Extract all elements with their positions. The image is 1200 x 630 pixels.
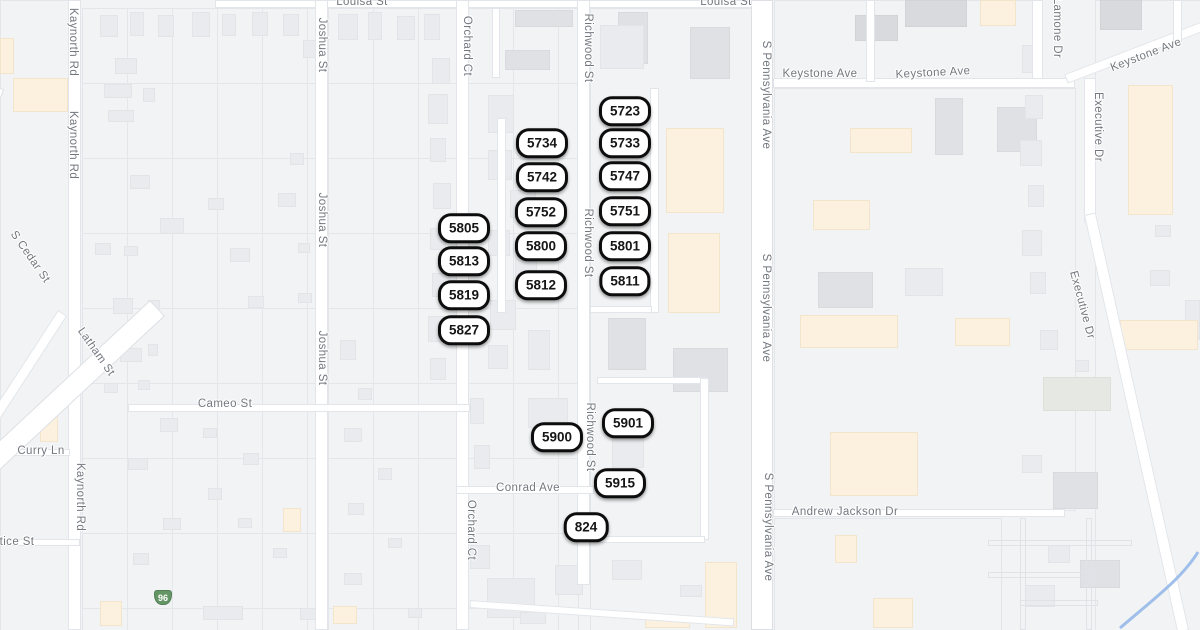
building (690, 27, 730, 79)
building (148, 344, 158, 356)
building (378, 468, 392, 480)
building (368, 12, 382, 40)
building (340, 340, 356, 360)
address-marker[interactable]: 5733 (599, 128, 651, 158)
building (855, 15, 898, 41)
alley (650, 88, 659, 313)
address-marker[interactable]: 5801 (599, 231, 651, 261)
building (680, 585, 702, 597)
building (612, 560, 642, 580)
building (1150, 270, 1170, 286)
building (1022, 230, 1042, 256)
alley (866, 0, 875, 82)
building (238, 518, 252, 528)
building (1020, 140, 1042, 166)
building (470, 398, 484, 424)
building (203, 606, 243, 620)
building (222, 14, 236, 36)
street-label: Louisa St (700, 0, 752, 8)
building (203, 428, 217, 438)
building (208, 488, 222, 500)
building (1048, 545, 1070, 563)
street-label: Kaynorth Rd (67, 8, 79, 76)
building (143, 88, 155, 102)
building (1025, 95, 1043, 119)
building (160, 418, 178, 432)
building (95, 243, 111, 255)
building (163, 518, 181, 530)
alley (497, 118, 506, 313)
building (1100, 0, 1142, 30)
address-marker[interactable]: 5800 (515, 231, 567, 261)
address-marker[interactable]: 5812 (515, 270, 567, 300)
street-label: Executive Dr (1092, 92, 1104, 162)
building (1028, 185, 1044, 207)
building (1075, 360, 1089, 372)
building (474, 445, 490, 469)
street-label: Curry Ln (17, 445, 64, 457)
street-label: Louisa St (336, 0, 388, 8)
address-marker[interactable]: 5827 (438, 315, 490, 345)
street-label: Keystone Ave (783, 68, 858, 80)
building (1030, 272, 1046, 294)
building (1120, 320, 1198, 350)
building (298, 293, 312, 303)
building (0, 38, 14, 74)
building (433, 183, 451, 209)
building (133, 553, 149, 565)
building (955, 318, 1010, 346)
building (160, 218, 184, 234)
building (520, 612, 546, 624)
building (130, 12, 144, 36)
building (600, 25, 644, 69)
building (612, 438, 644, 468)
building (348, 503, 364, 515)
address-marker[interactable]: 824 (564, 512, 609, 542)
building (873, 598, 913, 628)
building (344, 428, 362, 442)
road-joshua-st (315, 0, 328, 630)
street-label: Lamone Dr (1051, 0, 1063, 58)
street-label: Joshua St (316, 193, 328, 248)
building (158, 15, 174, 37)
building (424, 14, 440, 40)
alley (492, 8, 500, 78)
road-lamone-dr (1032, 0, 1043, 86)
street-label: Richwood St (584, 403, 596, 472)
street-label: S Pennsylvania Ave (760, 254, 772, 363)
building (428, 94, 448, 124)
building (358, 388, 372, 400)
building (980, 0, 1016, 26)
building (100, 601, 122, 626)
road-louisa-st (215, 0, 760, 8)
map-canvas[interactable]: Louisa StLouisa StKaynorth RdKaynorth Rd… (0, 0, 1200, 630)
building (344, 573, 362, 585)
city-block (82, 8, 317, 630)
building (278, 193, 296, 207)
street-label: S Pennsylvania Ave (760, 41, 772, 150)
building (432, 58, 450, 84)
road-cameo-st (128, 404, 470, 412)
building (666, 128, 724, 213)
building (138, 380, 150, 390)
address-marker[interactable]: 5751 (599, 196, 651, 226)
building (905, 0, 967, 27)
address-marker[interactable]: 5747 (599, 161, 651, 191)
building (104, 84, 132, 98)
street-label: tice St (0, 536, 34, 548)
street-label: Andrew Jackson Dr (792, 506, 899, 518)
alley (597, 377, 707, 384)
address-marker[interactable]: 5742 (516, 162, 568, 192)
parking-lane (988, 572, 1098, 578)
building (243, 453, 259, 465)
address-marker[interactable]: 5819 (438, 280, 490, 310)
building (408, 608, 422, 618)
building (333, 606, 357, 624)
building (800, 315, 898, 348)
alley (700, 378, 709, 540)
building (830, 432, 918, 496)
building (905, 268, 943, 296)
building (130, 175, 150, 189)
address-marker[interactable]: 5901 (602, 408, 654, 438)
building (1022, 455, 1042, 473)
building (397, 16, 415, 40)
building (813, 200, 870, 230)
building (273, 548, 287, 558)
road-kaynorth-rd (68, 0, 81, 630)
address-marker[interactable]: 5805 (438, 213, 490, 243)
parking-lane (1020, 600, 1098, 606)
building (1128, 85, 1173, 215)
address-marker[interactable]: 5813 (438, 246, 490, 276)
building (515, 10, 573, 27)
building (1053, 472, 1098, 509)
building (113, 298, 133, 314)
building (505, 50, 550, 70)
alley (590, 306, 652, 313)
building (388, 538, 402, 548)
building (104, 383, 118, 393)
street-label: Richwood St (582, 209, 594, 278)
street-label: Orchard Ct (461, 16, 473, 76)
address-marker[interactable]: 5811 (599, 266, 650, 296)
building (248, 296, 264, 308)
building (128, 458, 148, 470)
street-label: Richwood St (582, 14, 594, 83)
building (430, 138, 446, 162)
building (1155, 225, 1171, 237)
street-label: Orchard Ct (465, 500, 477, 560)
building (283, 14, 299, 36)
building (298, 243, 310, 253)
street-label: Kaynorth Rd (67, 111, 79, 179)
building (528, 330, 550, 370)
building (192, 12, 210, 37)
road-richwood-st (577, 0, 590, 585)
building (1040, 330, 1058, 350)
building (818, 272, 873, 308)
building (338, 14, 358, 40)
building (935, 98, 963, 155)
building (608, 318, 646, 370)
building (252, 12, 268, 36)
building (488, 345, 508, 369)
address-marker[interactable]: 5734 (516, 128, 568, 158)
building (115, 58, 137, 74)
alley (597, 536, 705, 543)
building (290, 153, 304, 165)
street-label: Joshua St (316, 18, 328, 73)
building (13, 78, 68, 112)
building (208, 198, 224, 210)
street-label: Cameo St (198, 398, 252, 410)
street-label: Conrad Ave (496, 482, 560, 494)
building (230, 248, 250, 262)
building (1043, 377, 1111, 411)
building (124, 246, 138, 256)
building (668, 233, 720, 313)
building (108, 110, 134, 122)
building (430, 358, 446, 380)
street-label: S Pennsylvania Ave (762, 473, 774, 582)
street-label: Kaynorth Rd (74, 463, 86, 531)
building (100, 15, 118, 37)
building (283, 508, 301, 532)
street-label: Joshua St (316, 331, 328, 386)
address-marker[interactable]: 5915 (594, 468, 646, 498)
building (835, 535, 857, 563)
address-marker[interactable]: 5723 (599, 96, 651, 126)
address-marker[interactable]: 5752 (515, 197, 567, 227)
building (850, 128, 912, 153)
stream (1100, 530, 1200, 630)
address-marker[interactable]: 5900 (531, 422, 583, 452)
